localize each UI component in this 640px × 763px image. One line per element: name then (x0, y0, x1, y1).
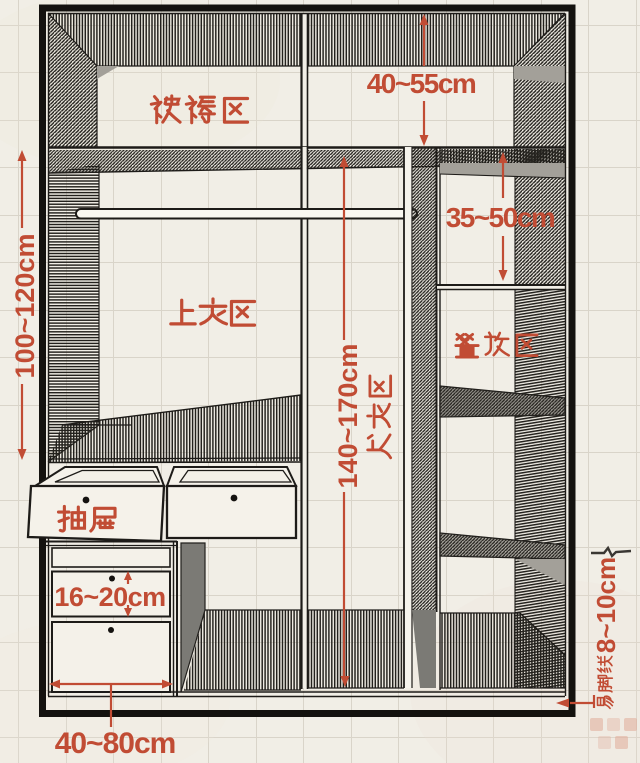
svg-text:140~170cm: 140~170cm (333, 344, 363, 489)
svg-text:8~10cm: 8~10cm (591, 557, 621, 653)
svg-text:40~80cm: 40~80cm (55, 727, 176, 760)
svg-text:16~20cm: 16~20cm (54, 582, 165, 612)
svg-text:100~120cm: 100~120cm (10, 234, 40, 379)
svg-text:35~50cm: 35~50cm (446, 202, 555, 233)
svg-text:40~55cm: 40~55cm (367, 68, 476, 99)
